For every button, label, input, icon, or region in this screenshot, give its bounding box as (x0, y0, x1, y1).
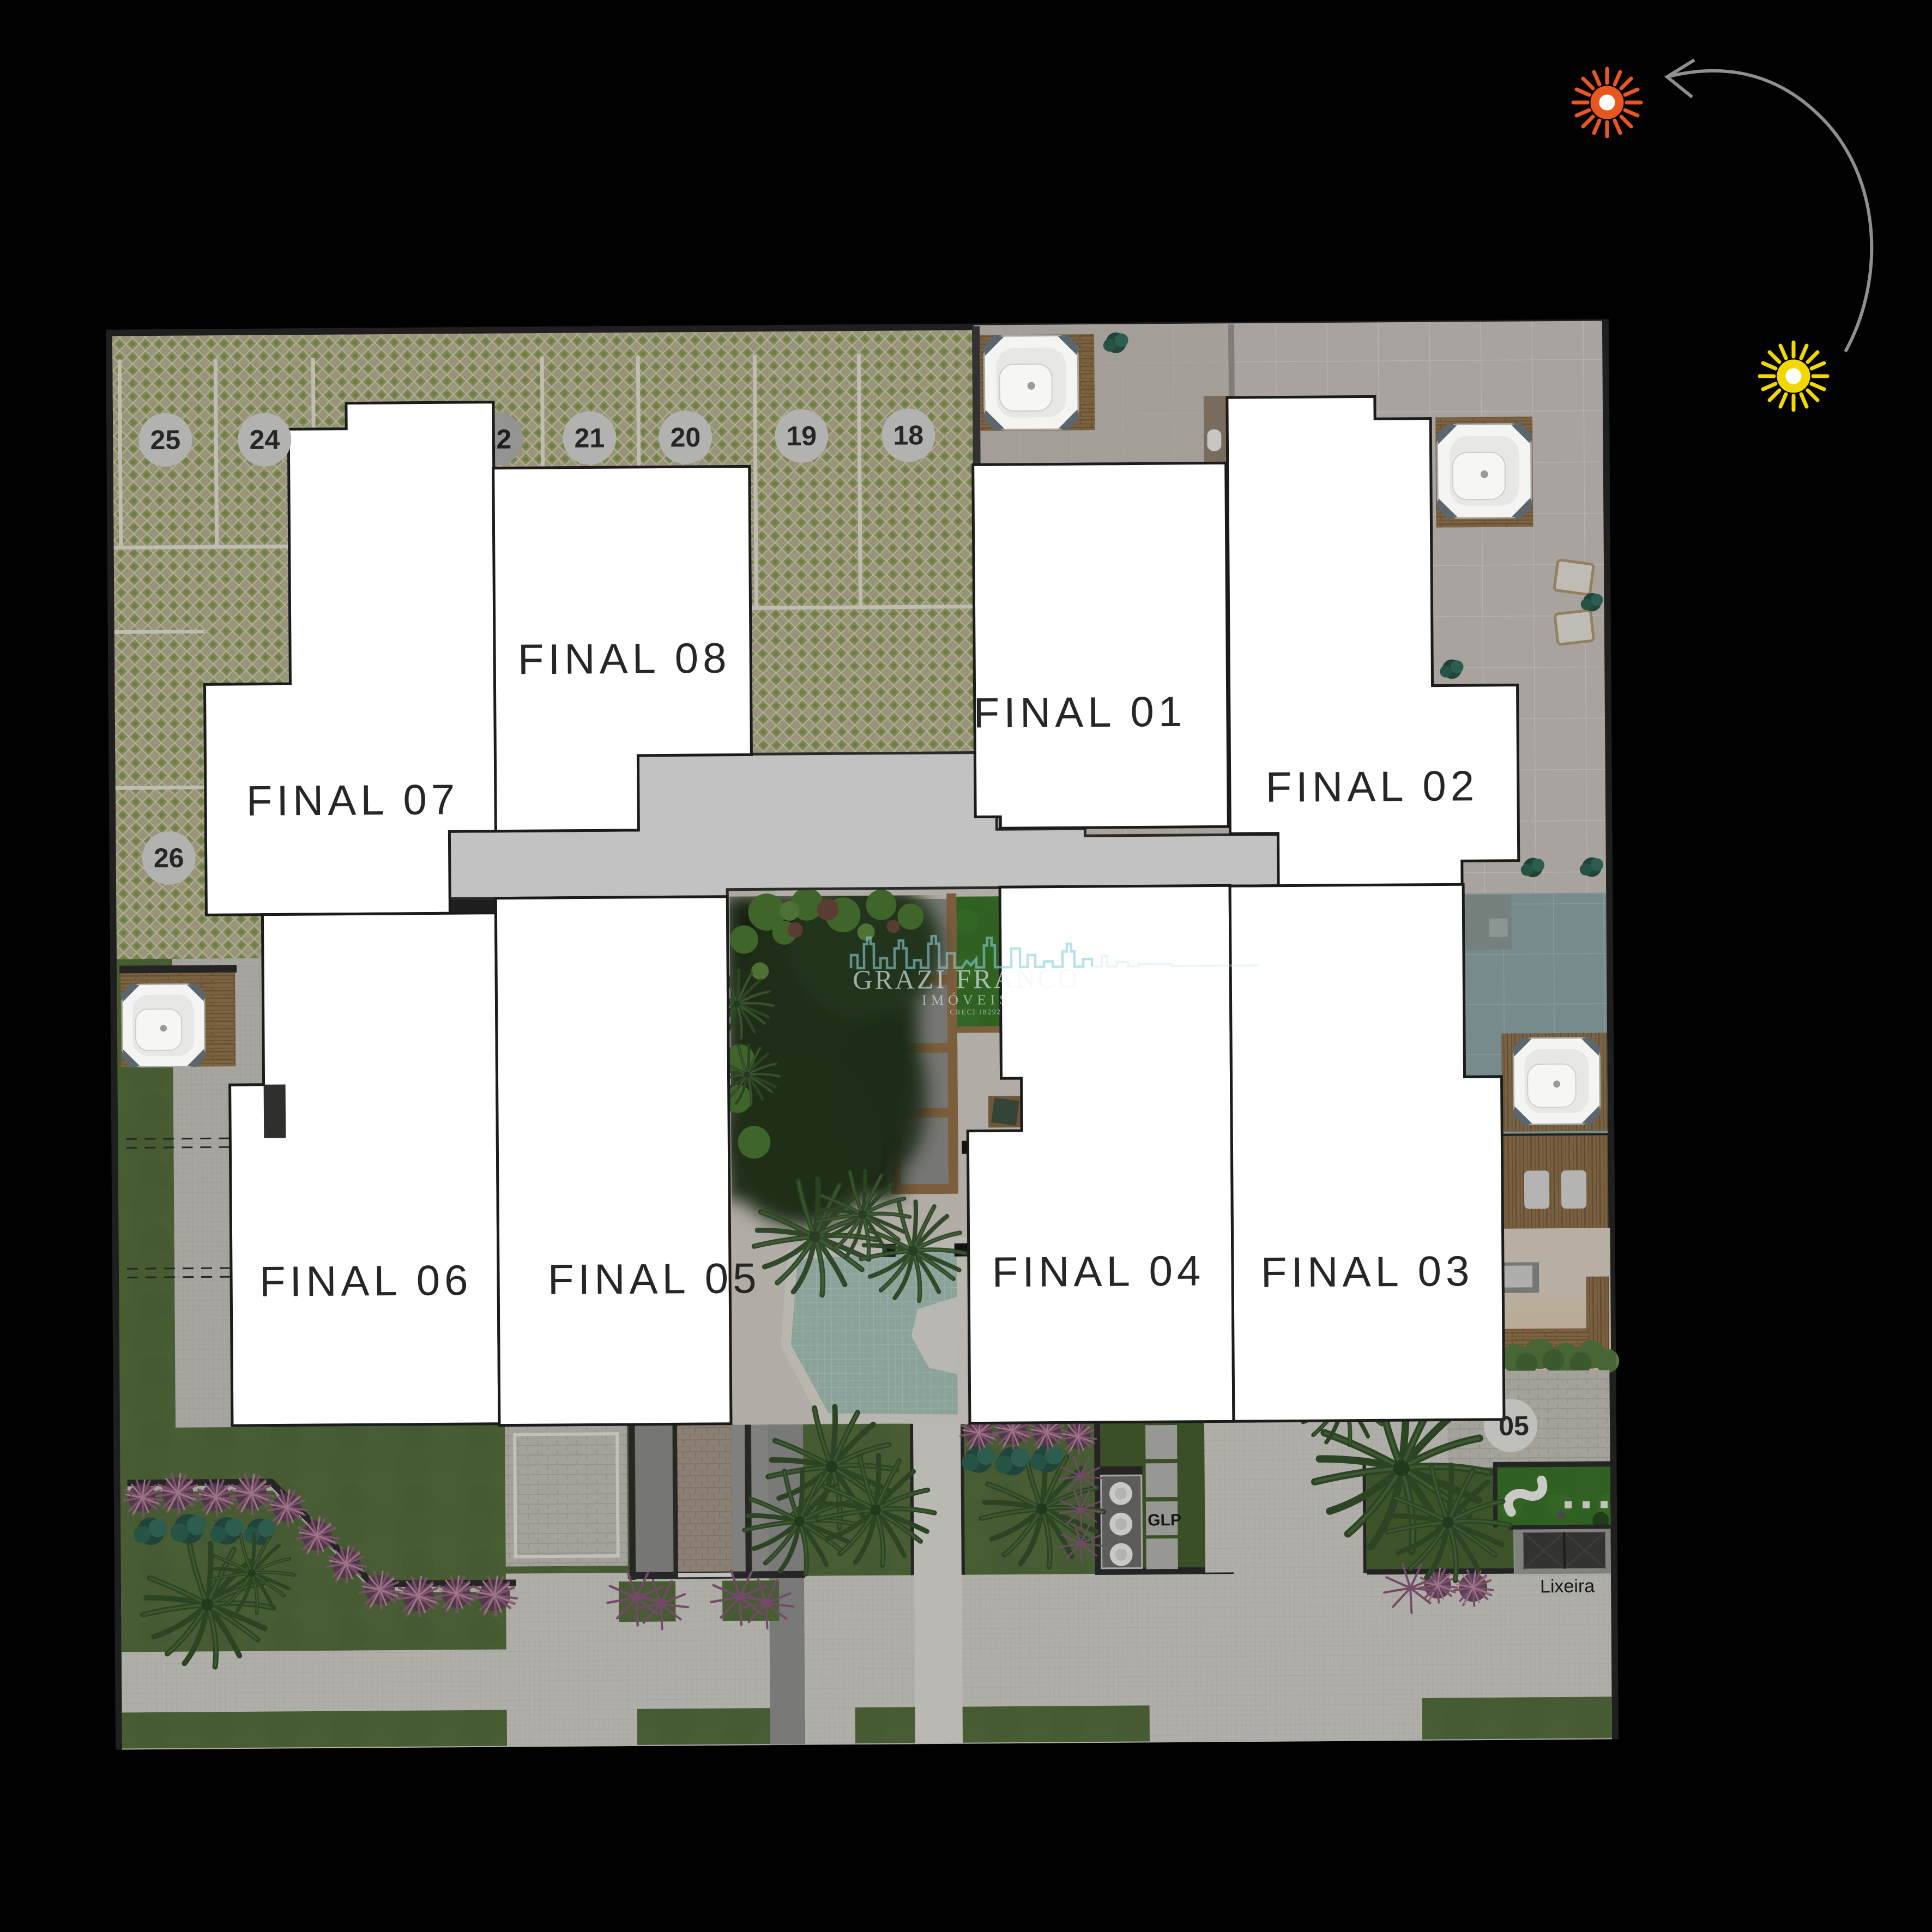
svg-text:FINAL 07: FINAL 07 (246, 775, 459, 825)
svg-text:20: 20 (670, 422, 701, 452)
svg-text:FINAL 05: FINAL 05 (548, 1254, 761, 1303)
svg-text:18: 18 (893, 420, 923, 450)
svg-text:19: 19 (786, 421, 817, 451)
svg-text:CRECI J8292: CRECI J8292 (950, 1007, 1001, 1016)
svg-text:FINAL 02: FINAL 02 (1265, 762, 1478, 811)
svg-text:FINAL 06: FINAL 06 (259, 1256, 473, 1306)
svg-text:IMÓVEIS: IMÓVEIS (922, 992, 1012, 1008)
svg-text:26: 26 (154, 843, 184, 873)
svg-text:05: 05 (1499, 1410, 1529, 1441)
svg-text:FINAL 01: FINAL 01 (973, 687, 1186, 737)
svg-text:24: 24 (249, 424, 280, 455)
svg-text:FINAL 08: FINAL 08 (518, 634, 731, 684)
svg-text:GRAZI FRANCO: GRAZI FRANCO (853, 963, 1079, 995)
svg-text:25: 25 (150, 425, 180, 455)
svg-text:FINAL 03: FINAL 03 (1260, 1247, 1474, 1296)
svg-text:FINAL 04: FINAL 04 (992, 1247, 1205, 1296)
svg-text:21: 21 (574, 422, 605, 453)
